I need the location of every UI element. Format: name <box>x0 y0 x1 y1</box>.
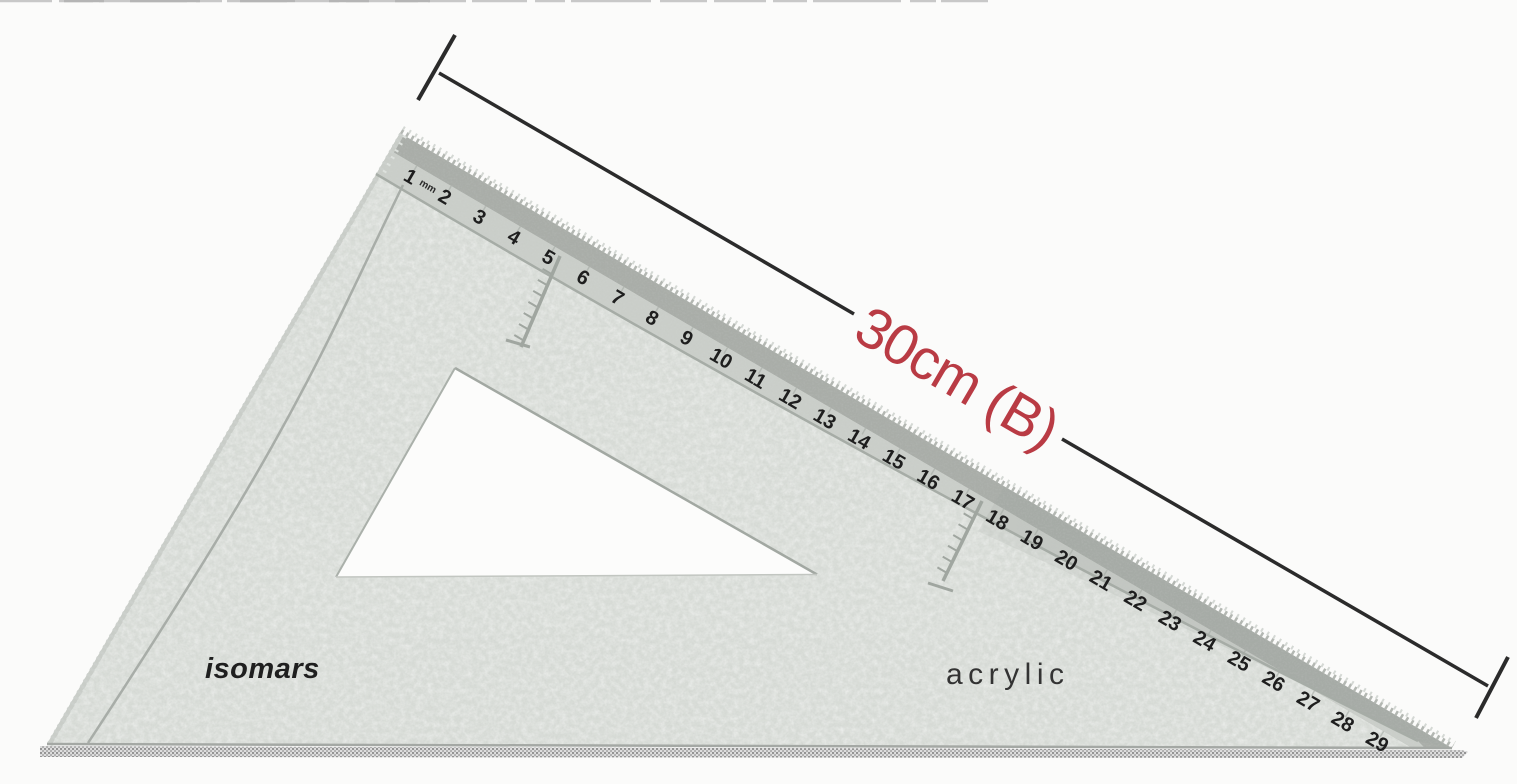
svg-text:isomars: isomars <box>205 653 320 685</box>
svg-text:acrylic: acrylic <box>946 658 1070 691</box>
